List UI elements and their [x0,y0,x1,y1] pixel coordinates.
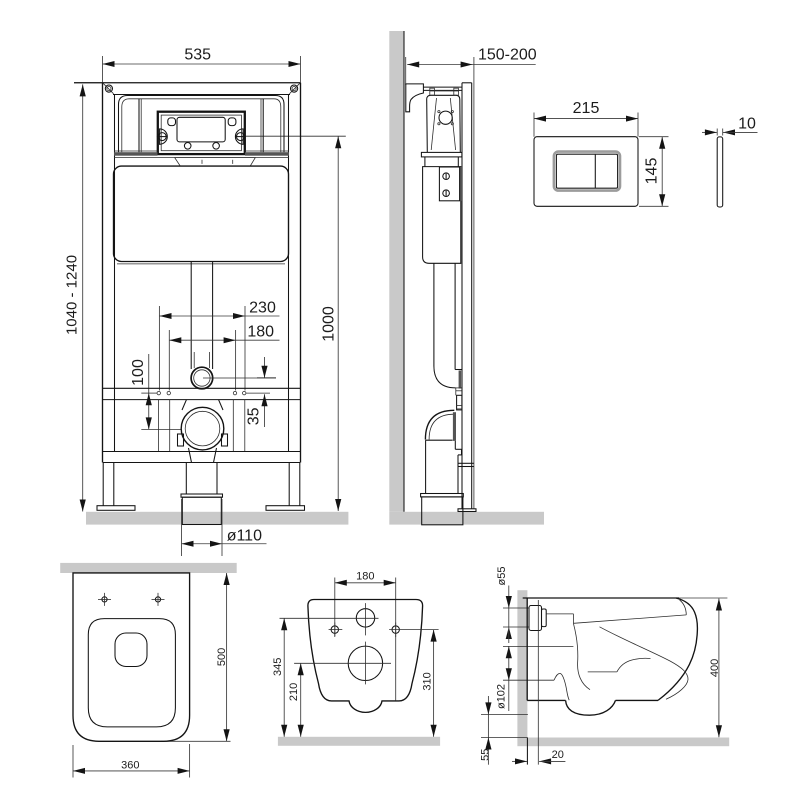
svg-text:ø55: ø55 [496,567,508,586]
svg-text:345: 345 [272,658,284,676]
svg-text:180: 180 [247,324,274,341]
svg-text:360: 360 [121,759,139,771]
svg-text:1040 - 1240: 1040 - 1240 [64,255,81,335]
svg-text:ø110: ø110 [227,527,262,544]
svg-text:215: 215 [573,100,600,117]
svg-text:210: 210 [288,683,300,701]
svg-text:35: 35 [245,407,262,425]
svg-text:10: 10 [738,116,756,133]
svg-text:500: 500 [216,648,228,666]
svg-text:150-200: 150-200 [478,47,537,64]
svg-text:1000: 1000 [321,306,338,342]
svg-text:20: 20 [552,749,564,761]
svg-text:55: 55 [479,749,491,761]
svg-text:ø102: ø102 [496,684,508,709]
svg-text:100: 100 [130,359,147,386]
svg-text:145: 145 [644,158,661,185]
svg-text:180: 180 [356,571,374,583]
svg-text:535: 535 [184,47,211,64]
svg-text:310: 310 [421,672,433,690]
svg-text:230: 230 [249,300,276,317]
svg-text:400: 400 [709,659,721,677]
